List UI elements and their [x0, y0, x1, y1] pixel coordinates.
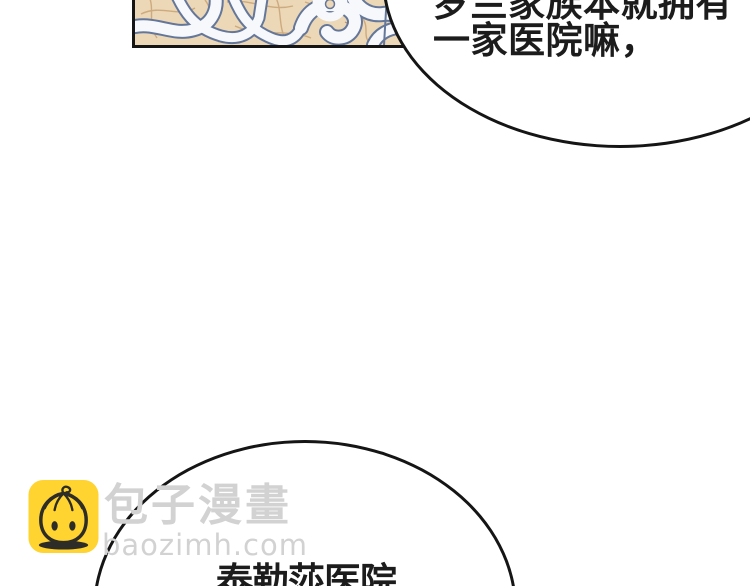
- bun-shadow: [39, 541, 88, 550]
- comic-panel-fragment: [132, 0, 412, 48]
- bun-body: [41, 493, 86, 542]
- bun-eyes: [51, 521, 75, 530]
- panel-branch-art: [135, 0, 409, 45]
- baozi-bun-icon: [28, 479, 99, 555]
- icon-background: [28, 480, 98, 553]
- speech-bottom-line-1: 泰勒莎医院: [216, 563, 396, 586]
- speech-text-bottom: 泰勒莎医院: [216, 563, 396, 586]
- branch-loop-hole: [326, 0, 335, 9]
- comic-page: 罗兰家族本就拥有 一家医院嘛， 泰勒莎医院 包子漫畫 baozimh.com: [0, 0, 750, 586]
- speech-text-top: 罗兰家族本就拥有 一家医院嘛，: [433, 0, 733, 59]
- bun-pleats: [45, 487, 82, 510]
- speech-top-line-2: 一家医院嘛，: [433, 22, 733, 59]
